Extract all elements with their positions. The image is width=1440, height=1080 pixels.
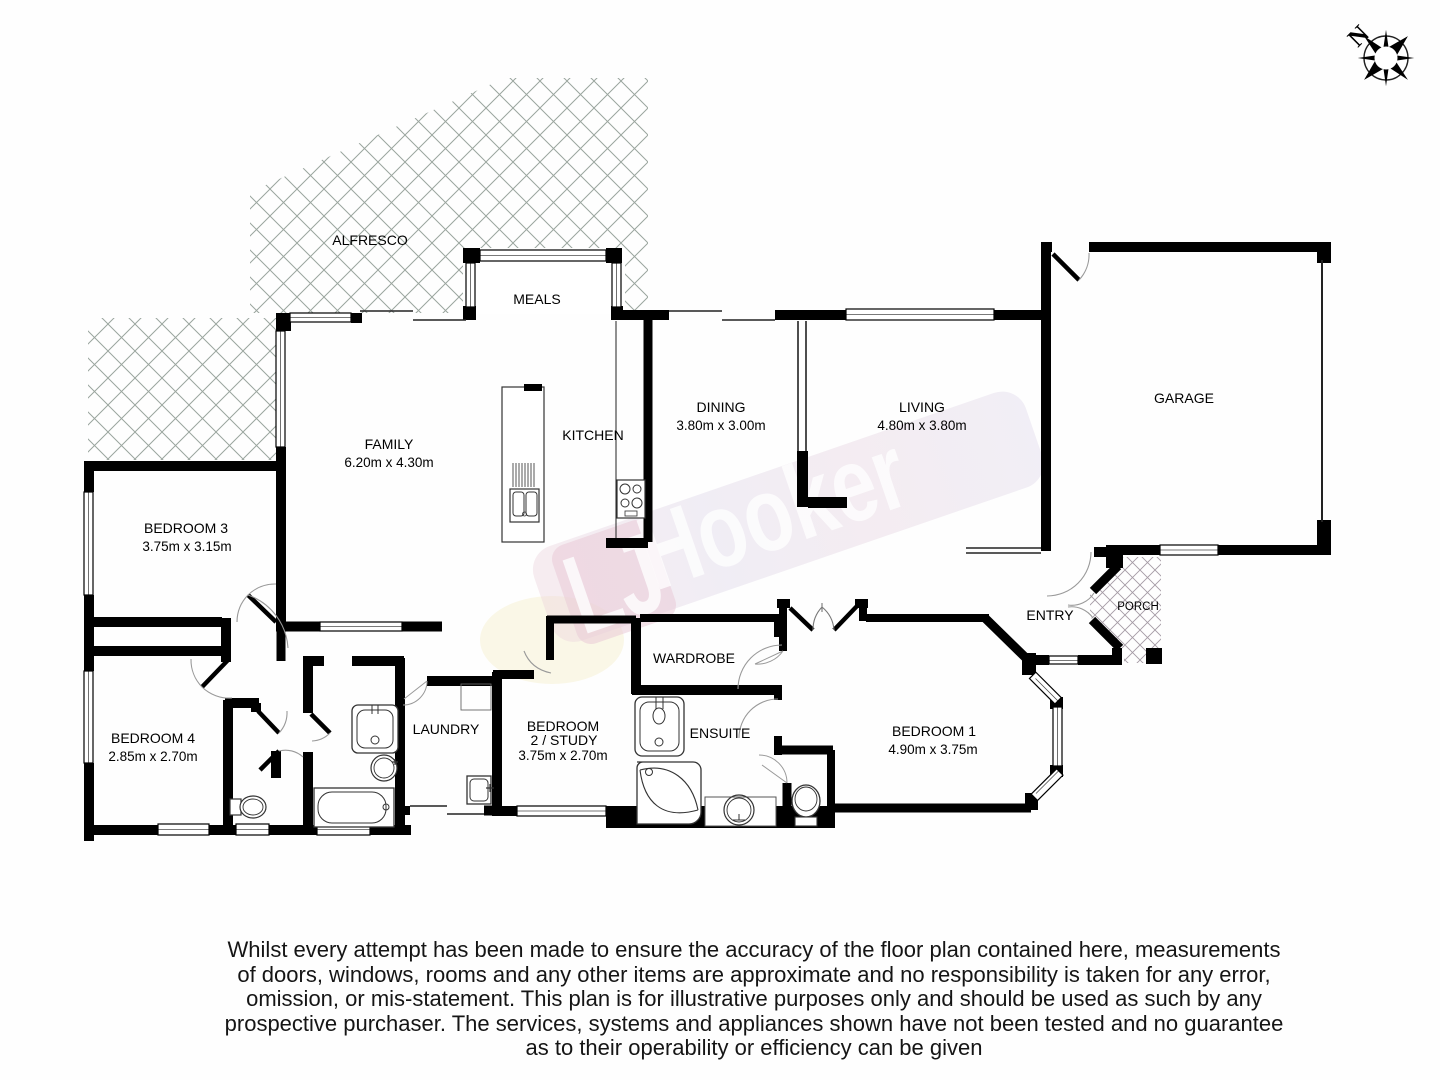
svg-text:LIVING: LIVING: [899, 399, 945, 415]
svg-text:KITCHEN: KITCHEN: [562, 427, 623, 443]
svg-text:2 / STUDY: 2 / STUDY: [531, 732, 599, 748]
svg-text:3.80m x 3.00m: 3.80m x 3.00m: [676, 418, 765, 433]
svg-text:PORCH: PORCH: [1117, 601, 1159, 613]
svg-text:3.75m x 2.70m: 3.75m x 2.70m: [518, 748, 607, 763]
svg-text:LAUNDRY: LAUNDRY: [413, 721, 480, 737]
svg-text:3.75m x 3.15m: 3.75m x 3.15m: [142, 539, 231, 554]
svg-text:ENSUITE: ENSUITE: [690, 725, 751, 741]
svg-text:Hooker: Hooker: [624, 412, 921, 613]
svg-text:WARDROBE: WARDROBE: [653, 650, 735, 666]
svg-text:6.20m x 4.30m: 6.20m x 4.30m: [344, 455, 433, 470]
svg-text:4.80m x 3.80m: 4.80m x 3.80m: [877, 418, 966, 433]
svg-text:BEDROOM 4: BEDROOM 4: [111, 730, 195, 746]
svg-text:FAMILY: FAMILY: [365, 436, 414, 452]
svg-text:MEALS: MEALS: [513, 291, 560, 307]
svg-text:N: N: [1343, 21, 1375, 53]
svg-text:BEDROOM 3: BEDROOM 3: [144, 520, 228, 536]
svg-text:ALFRESCO: ALFRESCO: [332, 232, 408, 248]
svg-text:GARAGE: GARAGE: [1154, 390, 1214, 406]
svg-text:ENTRY: ENTRY: [1026, 607, 1074, 623]
svg-text:BEDROOM 1: BEDROOM 1: [892, 723, 976, 739]
svg-text:DINING: DINING: [697, 399, 746, 415]
svg-text:2.85m x 2.70m: 2.85m x 2.70m: [108, 749, 197, 764]
svg-text:4.90m x 3.75m: 4.90m x 3.75m: [888, 742, 977, 757]
